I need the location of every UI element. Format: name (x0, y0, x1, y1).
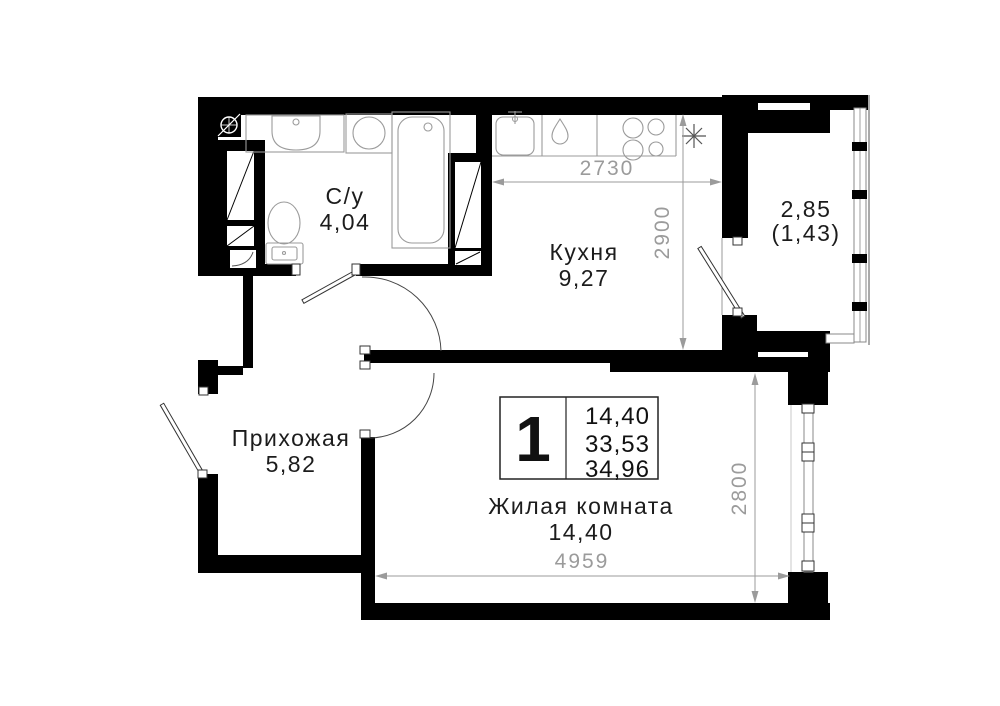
walls (198, 95, 868, 620)
entrance-door-leaf (160, 403, 205, 478)
info-room-count: 1 (515, 403, 551, 475)
dim-arrow (375, 573, 387, 580)
info-living-area: 14,40 (585, 403, 650, 430)
info-total-area: 34,96 (585, 456, 650, 483)
door-jamb (360, 430, 370, 438)
shaft (230, 250, 256, 268)
balcony-area: 2,85 (781, 196, 832, 222)
dim-arrow (680, 338, 687, 350)
glazing-mullion (852, 254, 867, 263)
dishwasher-drop-icon (552, 119, 568, 144)
bathtub (392, 112, 450, 248)
dim-living-depth: 2800 (728, 461, 751, 516)
window-handle (802, 523, 814, 532)
living-window (804, 405, 813, 572)
bathroom-label: С/у (326, 183, 365, 209)
wall-segment (217, 555, 363, 573)
door-leaf (160, 403, 205, 478)
wall-segment (722, 95, 748, 238)
hallway-label: Прихожая (232, 425, 351, 451)
dim-arrow (710, 179, 722, 186)
window-slot (758, 103, 810, 110)
glazing-mullion (852, 302, 867, 311)
sink-drain (293, 119, 299, 125)
window-handle (802, 443, 814, 452)
floor-plan-svg: 2730 2900 4959 2800 С/у 4,04 Кухня 9,27 … (0, 0, 1000, 706)
stove-burners (623, 118, 664, 160)
dim-arrow (752, 591, 759, 603)
window-handle (802, 561, 814, 571)
wall-segment (748, 110, 830, 133)
door-jamb (199, 387, 208, 395)
info-box: 1 14,40 33,53 34,96 (500, 397, 658, 483)
info-area: 33,53 (585, 431, 650, 458)
living-area: 14,40 (548, 519, 613, 545)
balcony-area-coeff: (1,43) (771, 220, 840, 246)
wall-segment (361, 437, 375, 607)
burner (649, 142, 663, 156)
window-handle (802, 452, 814, 461)
balcony-door-leaf (698, 246, 745, 318)
dim-living-width: 4959 (555, 550, 610, 573)
toilet-button (283, 252, 286, 255)
wall-segment (788, 372, 828, 405)
wall-segment (361, 603, 830, 620)
burner (648, 119, 664, 135)
wall-segment (217, 366, 243, 375)
bathroom-door-leaf (302, 269, 359, 303)
hallway-area: 5,82 (266, 451, 317, 477)
bathtub-drain (424, 123, 432, 131)
bathtub-inner (398, 117, 444, 243)
kitchen-fixtures (492, 111, 706, 160)
glazing-mullion (852, 142, 867, 151)
sink-bowl (272, 116, 320, 150)
door-jamb (292, 264, 300, 275)
toilet-tank-inner (272, 247, 297, 260)
window-slot (758, 352, 808, 357)
washing-machine (346, 114, 392, 153)
dim-kitchen-width: 2730 (580, 157, 635, 180)
washer-drum (353, 117, 385, 149)
door-jamb (733, 237, 742, 245)
wall-segment (788, 572, 828, 620)
asterisk-symbol (682, 124, 706, 148)
balcony-glazing-bottom (826, 334, 854, 343)
living-label: Жилая комната (488, 493, 674, 519)
dim-arrow (680, 114, 687, 126)
kitchen-area: 9,27 (559, 265, 610, 291)
door-jamb (360, 346, 370, 354)
dim-arrow (752, 373, 759, 385)
wall-segment (243, 272, 253, 368)
dim-kitchen-depth: 2900 (651, 205, 674, 260)
kitchen-sink (496, 111, 534, 155)
wall-segment (722, 315, 757, 372)
glazing-mullion (852, 190, 867, 199)
bathroom-area: 4,04 (320, 209, 371, 235)
door-leaf (698, 246, 745, 318)
wall-segment (364, 350, 614, 363)
window-handle (802, 404, 814, 413)
toilet (266, 202, 303, 264)
door-leaf (302, 269, 359, 303)
door-jamb (360, 361, 370, 369)
door-jamb (733, 308, 742, 316)
bathroom-sink (272, 116, 320, 150)
wall-segment (198, 474, 218, 573)
floor-plan-canvas: 2730 2900 4959 2800 С/у 4,04 Кухня 9,27 … (0, 0, 1000, 706)
wall-segment (747, 331, 830, 372)
burner (623, 118, 643, 138)
dim-arrow (492, 179, 504, 186)
living-door-arc (369, 373, 434, 438)
door-jamb (352, 264, 360, 275)
window-handle (802, 514, 814, 523)
kitchen-label: Кухня (549, 239, 618, 265)
kitchen-door-arc (362, 277, 441, 351)
toilet-bowl (268, 202, 300, 244)
bathtub-outer (392, 112, 450, 248)
door-jamb (198, 470, 207, 478)
vent-shaft-symbol (217, 113, 241, 137)
